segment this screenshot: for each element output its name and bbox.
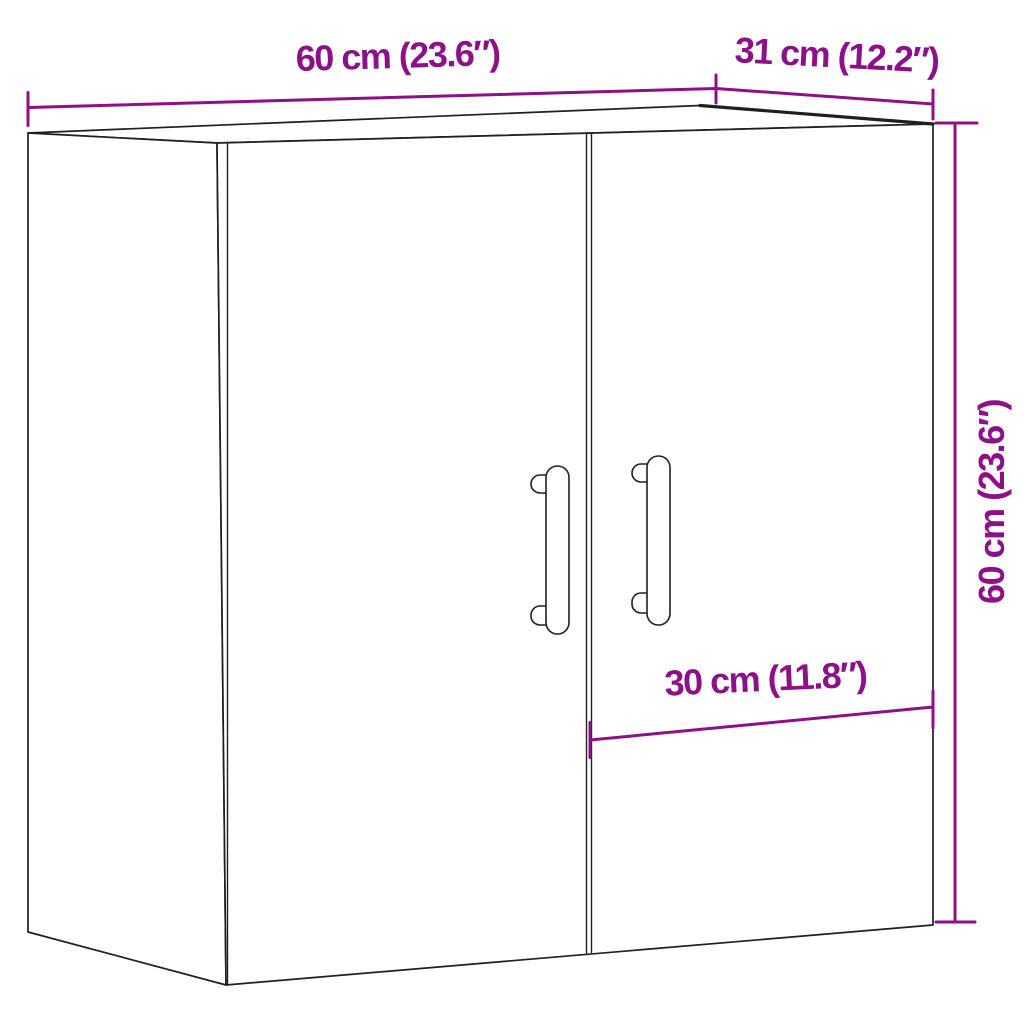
height-dimension-label: 60 cm (23.6″)	[971, 400, 1012, 604]
cabinet-body	[28, 106, 933, 986]
depth-dimension-label: 31 cm (12.2″)	[734, 29, 940, 81]
dimension-diagram: 60 cm (23.6″) 31 cm (12.2″) 60 cm (23.6″…	[0, 0, 1024, 1024]
width-dimension-label: 60 cm (23.6″)	[295, 32, 501, 79]
cabinet-front-face	[217, 124, 933, 985]
depth-dim-line	[716, 89, 933, 105]
width-dim-line	[28, 89, 716, 108]
cabinet-line-drawing: 60 cm (23.6″) 31 cm (12.2″) 60 cm (23.6″…	[0, 0, 1024, 1024]
left-handle-bar	[546, 466, 569, 634]
cabinet-left-side-panel	[28, 133, 226, 985]
right-handle-bar	[647, 456, 670, 625]
